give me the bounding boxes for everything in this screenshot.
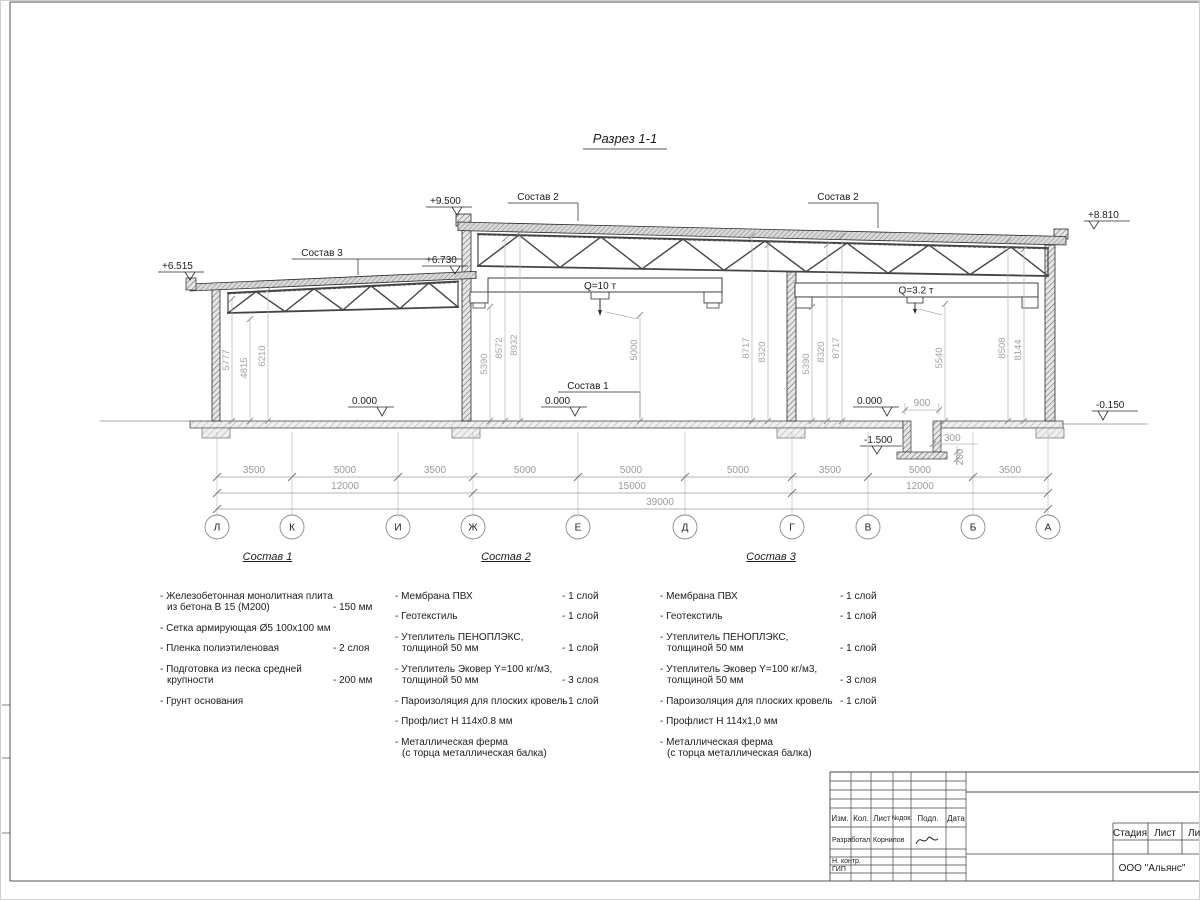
svg-text:+8.810: +8.810 — [1088, 210, 1119, 221]
grid-letter: А — [1045, 523, 1052, 534]
elevation-mark-floor-3: 0.000 — [853, 396, 899, 416]
column-mid-wall — [462, 228, 471, 421]
column-left-wall — [212, 289, 220, 421]
vdim-label: 4815 — [239, 357, 250, 378]
grid-letter: Е — [575, 523, 582, 534]
crane-hook-icon — [598, 310, 602, 316]
svg-text:+6.730: +6.730 — [426, 255, 457, 266]
vdim-label: 5390 — [801, 353, 812, 374]
material-item: - Утеплитель Эковер Y=100 кг/м3,толщиной… — [660, 664, 910, 687]
title-block: Изм. Кол. Лист №док. Подп. Дата Разработ… — [830, 772, 1200, 881]
material-item: - Подготовка из песка среднейкрупности -… — [160, 664, 410, 687]
section-title: Разрез 1-1 — [593, 131, 657, 146]
grid-letter: Ж — [468, 523, 478, 534]
composition-3-title: Состав 3 — [660, 552, 882, 564]
tb-developer-label: Разработал — [832, 836, 870, 844]
vdim-label: 8320 — [757, 341, 768, 362]
group-dim: 12000 — [331, 481, 359, 492]
vdim-label: 5390 — [479, 353, 490, 374]
group-dim: 15000 — [618, 481, 646, 492]
composition-list-3: Состав 3 - Мембрана ПВХ - 1 слой - Геоте… — [660, 552, 910, 769]
span-dim: 3500 — [243, 465, 266, 476]
material-item: - Грунт основания — [160, 696, 410, 708]
drawing-sheet: { "sheet": { "title": "Разрез 1-1" }, "d… — [0, 0, 1200, 900]
tb-col-podp: Подп. — [917, 814, 938, 823]
corbel — [796, 297, 812, 308]
material-item: - Мембрана ПВХ - 1 слой — [395, 591, 645, 603]
elevation-mark-low-left: +6.515 — [158, 261, 204, 280]
developer-signature — [916, 837, 938, 844]
elevation-mark-floor-2: 0.000 — [541, 396, 587, 416]
tb-sheet-label: Лист — [1154, 828, 1176, 839]
svg-text:Состав 3: Состав 3 — [301, 248, 343, 259]
composition-1-title: Состав 1 — [160, 552, 375, 564]
tb-col-ndok: №док. — [892, 815, 913, 822]
corbel — [470, 292, 488, 303]
span-dim: 3500 — [999, 465, 1022, 476]
material-item: - Мембрана ПВХ - 1 слой — [660, 591, 910, 603]
grid-letter: К — [289, 523, 295, 534]
tb-col-izm: Изм. — [831, 814, 848, 823]
corbel — [1022, 297, 1038, 308]
crane-hook-bracket — [907, 297, 923, 303]
vdim-label: 8320 — [816, 341, 827, 362]
crane-hook-icon — [913, 309, 917, 314]
svg-text:+6.515: +6.515 — [162, 261, 193, 272]
material-item: - Геотекстиль - 1 слой — [660, 611, 910, 623]
crane-beam-left: Q=10 т — [470, 278, 722, 316]
crane-hook-bracket — [591, 292, 609, 299]
grid-letter: Г — [789, 523, 795, 534]
composition-list-1: Состав 1 - Железобетонная монолитная пли… — [160, 552, 410, 716]
elevation-mark-low-right: +6.730 — [422, 255, 468, 274]
pit — [897, 421, 947, 459]
vdim-label: 5540 — [934, 347, 945, 368]
crane-capacity-left-label: Q=10 т — [584, 281, 617, 292]
vdim-label: 8508 — [997, 337, 1008, 358]
svg-text:-0.150: -0.150 — [1096, 400, 1125, 411]
composition-2-title: Состав 2 — [395, 552, 617, 564]
span-dim: 3500 — [819, 465, 842, 476]
label-sostav2-left: Состав 2 — [508, 192, 578, 221]
vdim-label: 6210 — [257, 345, 268, 366]
crane-beam-right: Q=3.2 т — [795, 283, 1038, 314]
material-item: - Металлическая ферма(с торца металличес… — [660, 737, 910, 760]
material-item: - Геотекстиль - 1 слой — [395, 611, 645, 623]
vdim-label: 8717 — [831, 337, 842, 358]
material-item: - Сетка армирующая Ø5 100х100 мм — [160, 623, 410, 635]
tb-ncontr-label: Н. контр. — [832, 858, 861, 865]
vdim-label: 8572 — [494, 337, 505, 358]
svg-text:+9.500: +9.500 — [430, 196, 461, 207]
span-dim: 5000 — [727, 465, 750, 476]
svg-text:0.000: 0.000 — [857, 396, 882, 407]
grid-letter: Б — [970, 523, 977, 534]
material-item: - Профлист Н 114х0.8 мм — [395, 716, 645, 728]
material-item: - Утеплитель ПЕНОПЛЭКС,толщиной 50 мм - … — [395, 632, 645, 655]
span-dim: 5000 — [620, 465, 643, 476]
span-dim: 5000 — [334, 465, 357, 476]
label-sostav1: Состав 1 — [558, 381, 640, 418]
material-item: - Пароизоляция для плоских кровель - 1 с… — [395, 696, 645, 708]
grid-axes: Л К И Ж Е Д Г В Б А — [205, 515, 1060, 539]
hook-leader-lines — [606, 309, 942, 319]
pit-wall-label: 300 — [944, 433, 961, 444]
span-dim: 3500 — [424, 465, 447, 476]
svg-text:Состав 2: Состав 2 — [817, 192, 859, 203]
elevation-mark-high-left: +9.500 — [426, 196, 472, 215]
corbel-plate — [473, 303, 485, 308]
svg-text:Состав 1: Состав 1 — [567, 381, 609, 392]
elevation-mark-high-right: +8.810 — [1084, 210, 1130, 229]
floor-slab — [100, 421, 1147, 428]
tb-sheets-label: Лис — [1188, 828, 1200, 839]
building-section: Q=10 т Q=3.2 т — [100, 214, 1147, 459]
span-dim: 5000 — [909, 465, 932, 476]
grid-letter: Л — [214, 523, 221, 534]
frame-edge-ticks — [2, 705, 10, 833]
svg-text:Состав 2: Состав 2 — [517, 192, 559, 203]
pit-width-label: 900 — [914, 398, 931, 409]
group-dim: 12000 — [906, 481, 934, 492]
corbel — [704, 292, 722, 303]
elevation-mark-floor-1: 0.000 — [348, 396, 394, 416]
tb-col-kol: Кол. — [853, 814, 869, 823]
elevation-mark-ground-right: -0.150 — [1092, 400, 1138, 420]
grid-letter: И — [394, 523, 401, 534]
tb-gip-label: ГИП — [832, 866, 846, 873]
material-item: - Железобетонная монолитная плитаиз бето… — [160, 591, 410, 614]
vdim-label: 8932 — [509, 334, 520, 355]
label-sostav2-right: Состав 2 — [808, 192, 878, 228]
svg-text:0.000: 0.000 — [545, 396, 570, 407]
tb-col-list: Лист — [873, 814, 891, 823]
crane-capacity-right-label: Q=3.2 т — [899, 286, 934, 297]
corbel-plate — [707, 303, 719, 308]
svg-text:0.000: 0.000 — [352, 396, 377, 407]
material-item: - Профлист Н 114х1,0 мм — [660, 716, 910, 728]
tb-company-name: ООО "Альянс" — [1119, 863, 1186, 874]
vdim-label: 5777 — [221, 349, 232, 370]
column-right-wall — [1045, 245, 1055, 421]
grid-letter: В — [865, 523, 872, 534]
material-item: - Металлическая ферма(с торца металличес… — [395, 737, 645, 760]
tb-stage-label: Стадия — [1113, 828, 1147, 839]
vdim-label: 8717 — [741, 337, 752, 358]
vdim-label: 8144 — [1013, 339, 1024, 360]
material-item: - Пароизоляция для плоских кровель - 1 с… — [660, 696, 910, 708]
total-dim: 39000 — [646, 497, 674, 508]
composition-list-2: Состав 2 - Мембрана ПВХ - 1 слой - Геоте… — [395, 552, 645, 769]
material-item: - Утеплитель Эковер Y=100 кг/м3,толщиной… — [395, 664, 645, 687]
material-item: - Утеплитель ПЕНОПЛЭКС,толщиной 50 мм - … — [660, 632, 910, 655]
pit-slab-label: 200 — [955, 448, 966, 465]
vdim-label: 5000 — [629, 339, 640, 360]
span-dim: 5000 — [514, 465, 537, 476]
grid-letter: Д — [682, 523, 689, 534]
elevation-mark-pit: -1.500 — [860, 435, 902, 454]
tb-col-data: Дата — [947, 814, 965, 823]
material-item: - Пленка полиэтиленовая - 2 слоя — [160, 643, 410, 655]
tb-developer-name: Корнилов — [873, 837, 905, 844]
